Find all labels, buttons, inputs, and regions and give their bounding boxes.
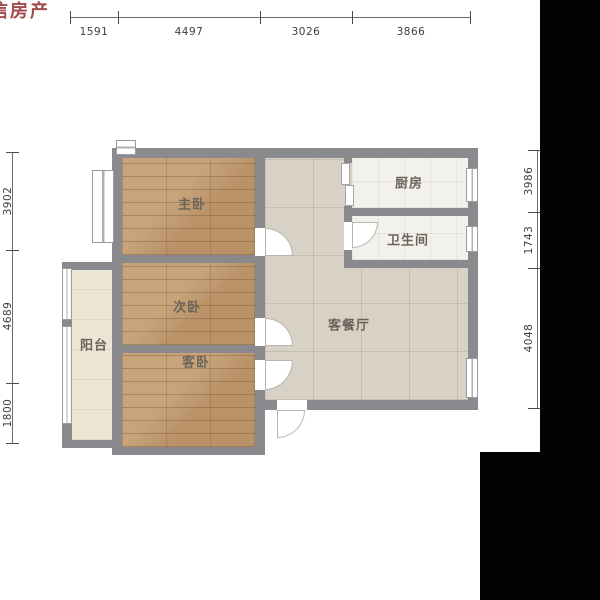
letterbox-right [540, 0, 600, 600]
door-opening [255, 228, 265, 256]
dimension-tick [260, 11, 261, 24]
room-label-kitchen: 厨房 [395, 173, 423, 192]
window [116, 140, 136, 155]
door-opening [344, 222, 352, 250]
wall [307, 400, 478, 410]
balcony-window [62, 326, 72, 424]
dimension-label: 3026 [260, 26, 352, 38]
room-label-balcony: 阳台 [80, 335, 108, 354]
wall [255, 148, 265, 228]
room-label-master-bedroom: 主卧 [178, 194, 206, 213]
room-label-guest-bedroom: 客卧 [182, 352, 210, 371]
kitchen-sliding-door [341, 163, 350, 185]
kitchen-window [466, 168, 478, 202]
room-label-living-dining: 客餐厅 [328, 315, 370, 334]
wall [468, 202, 478, 226]
wall [255, 346, 265, 360]
dimension-label: 1800 [2, 373, 14, 453]
dimension-label: 3866 [352, 26, 470, 38]
wall [344, 260, 478, 268]
dimension-label: 4689 [2, 276, 14, 356]
balcony-floor [72, 270, 112, 440]
wall [344, 208, 468, 216]
wall [255, 256, 265, 318]
dimension-label: 3902 [2, 161, 14, 241]
bay-window [92, 170, 114, 243]
bathroom-window [466, 226, 478, 252]
wall [255, 400, 277, 410]
dimension-line-right [537, 150, 538, 408]
wall [112, 148, 478, 158]
door-opening [255, 318, 265, 346]
dimension-tick [6, 152, 19, 153]
room-label-bathroom: 卫生间 [387, 230, 429, 249]
balcony-window [62, 268, 72, 320]
dimension-tick [6, 250, 19, 251]
wall [468, 398, 478, 410]
dimension-line-top [70, 17, 470, 18]
dimension-tick [70, 11, 71, 24]
entry-door-arc [277, 410, 305, 438]
letterbox-bottom-right [480, 452, 540, 600]
room-label-second-bedroom: 次卧 [173, 297, 201, 316]
wall [468, 148, 478, 168]
kitchen-sliding-door [345, 185, 354, 206]
door-opening [255, 360, 265, 390]
dimension-label: 1743 [523, 200, 535, 280]
wall [112, 447, 265, 455]
watermark-logo: 信房产 [0, 0, 50, 23]
wall [112, 255, 265, 263]
dimension-tick [118, 11, 119, 24]
wall [62, 440, 122, 448]
floorplan-screenshot: 信房产 1591 4497 3026 3866 3902 4689 1800 3… [0, 0, 600, 600]
dimension-tick [352, 11, 353, 24]
dimension-label: 1591 [70, 26, 118, 38]
dimension-tick [470, 11, 471, 24]
dimension-label: 4048 [523, 298, 535, 378]
living-room-window [466, 358, 478, 398]
dimension-label: 4497 [118, 26, 260, 38]
